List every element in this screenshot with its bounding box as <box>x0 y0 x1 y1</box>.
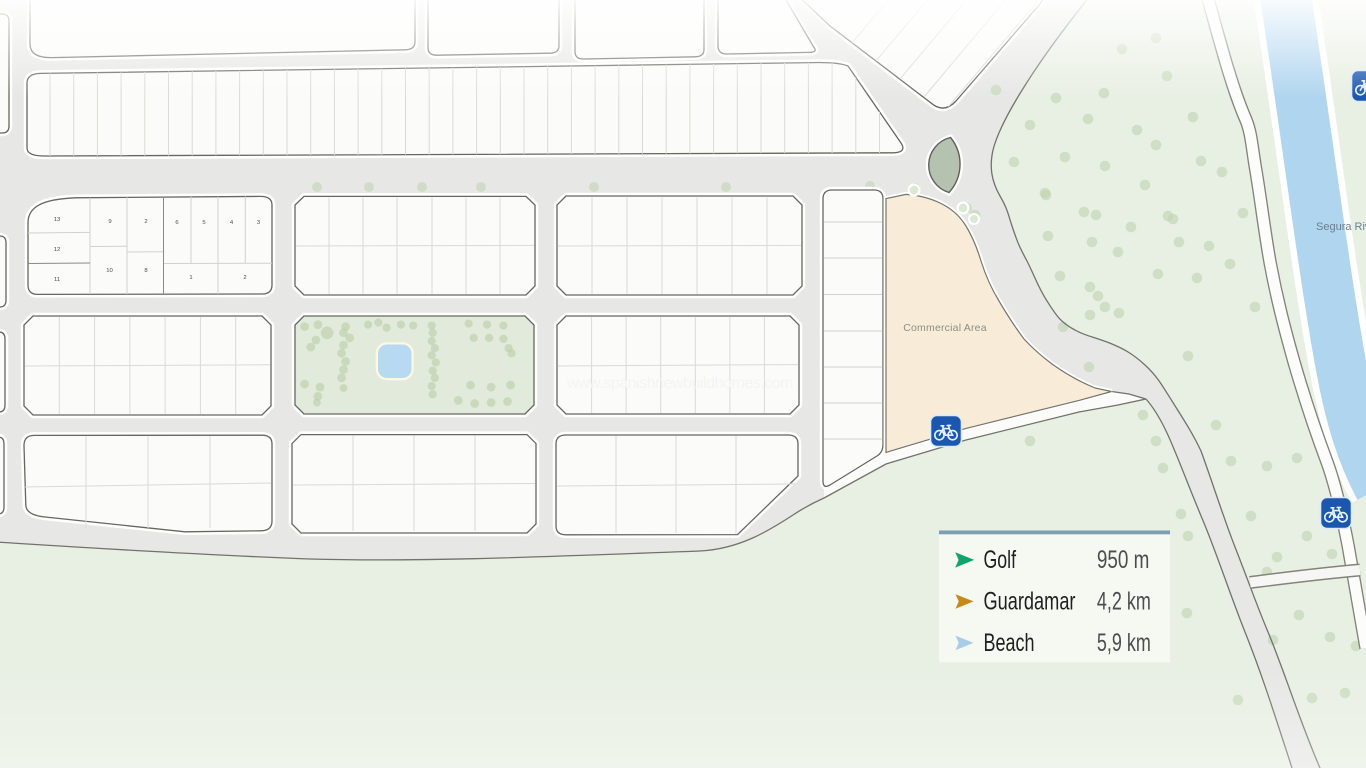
svg-text:Commercial Area: Commercial Area <box>903 322 987 334</box>
svg-text:Guardamar: Guardamar <box>984 589 1076 616</box>
svg-text:13: 13 <box>54 217 61 223</box>
svg-text:2: 2 <box>243 275 246 281</box>
svg-text:2: 2 <box>144 219 147 225</box>
svg-text:950 m: 950 m <box>1097 547 1150 574</box>
svg-text:11: 11 <box>54 277 60 283</box>
svg-text:Golf: Golf <box>984 547 1017 574</box>
svg-text:www.spanishnewbuildhomes.com: www.spanishnewbuildhomes.com <box>566 375 795 392</box>
svg-text:4,2 km: 4,2 km <box>1097 589 1151 616</box>
svg-text:Beach: Beach <box>984 630 1035 657</box>
svg-text:9: 9 <box>108 219 111 225</box>
svg-text:1: 1 <box>189 275 192 281</box>
svg-text:10: 10 <box>106 268 113 274</box>
svg-text:5,9 km: 5,9 km <box>1097 630 1151 657</box>
svg-text:12: 12 <box>54 247 61 253</box>
svg-text:Segura Rive: Segura Rive <box>1316 221 1366 233</box>
